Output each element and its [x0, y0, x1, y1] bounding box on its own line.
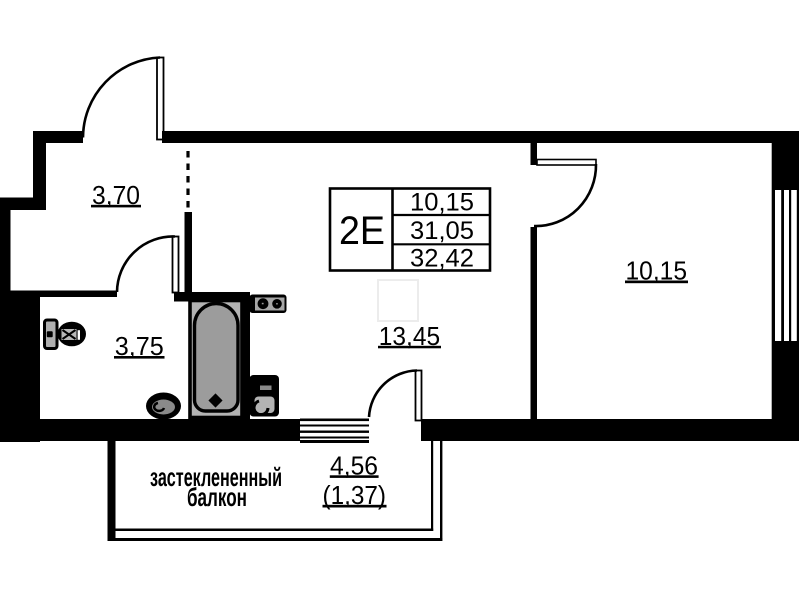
svg-text:10,15: 10,15 [410, 189, 474, 217]
svg-text:32,42: 32,42 [410, 245, 474, 273]
svg-text:балкон: балкон [187, 482, 247, 512]
svg-text:2E: 2E [339, 209, 385, 253]
svg-text:31,05: 31,05 [410, 217, 474, 245]
